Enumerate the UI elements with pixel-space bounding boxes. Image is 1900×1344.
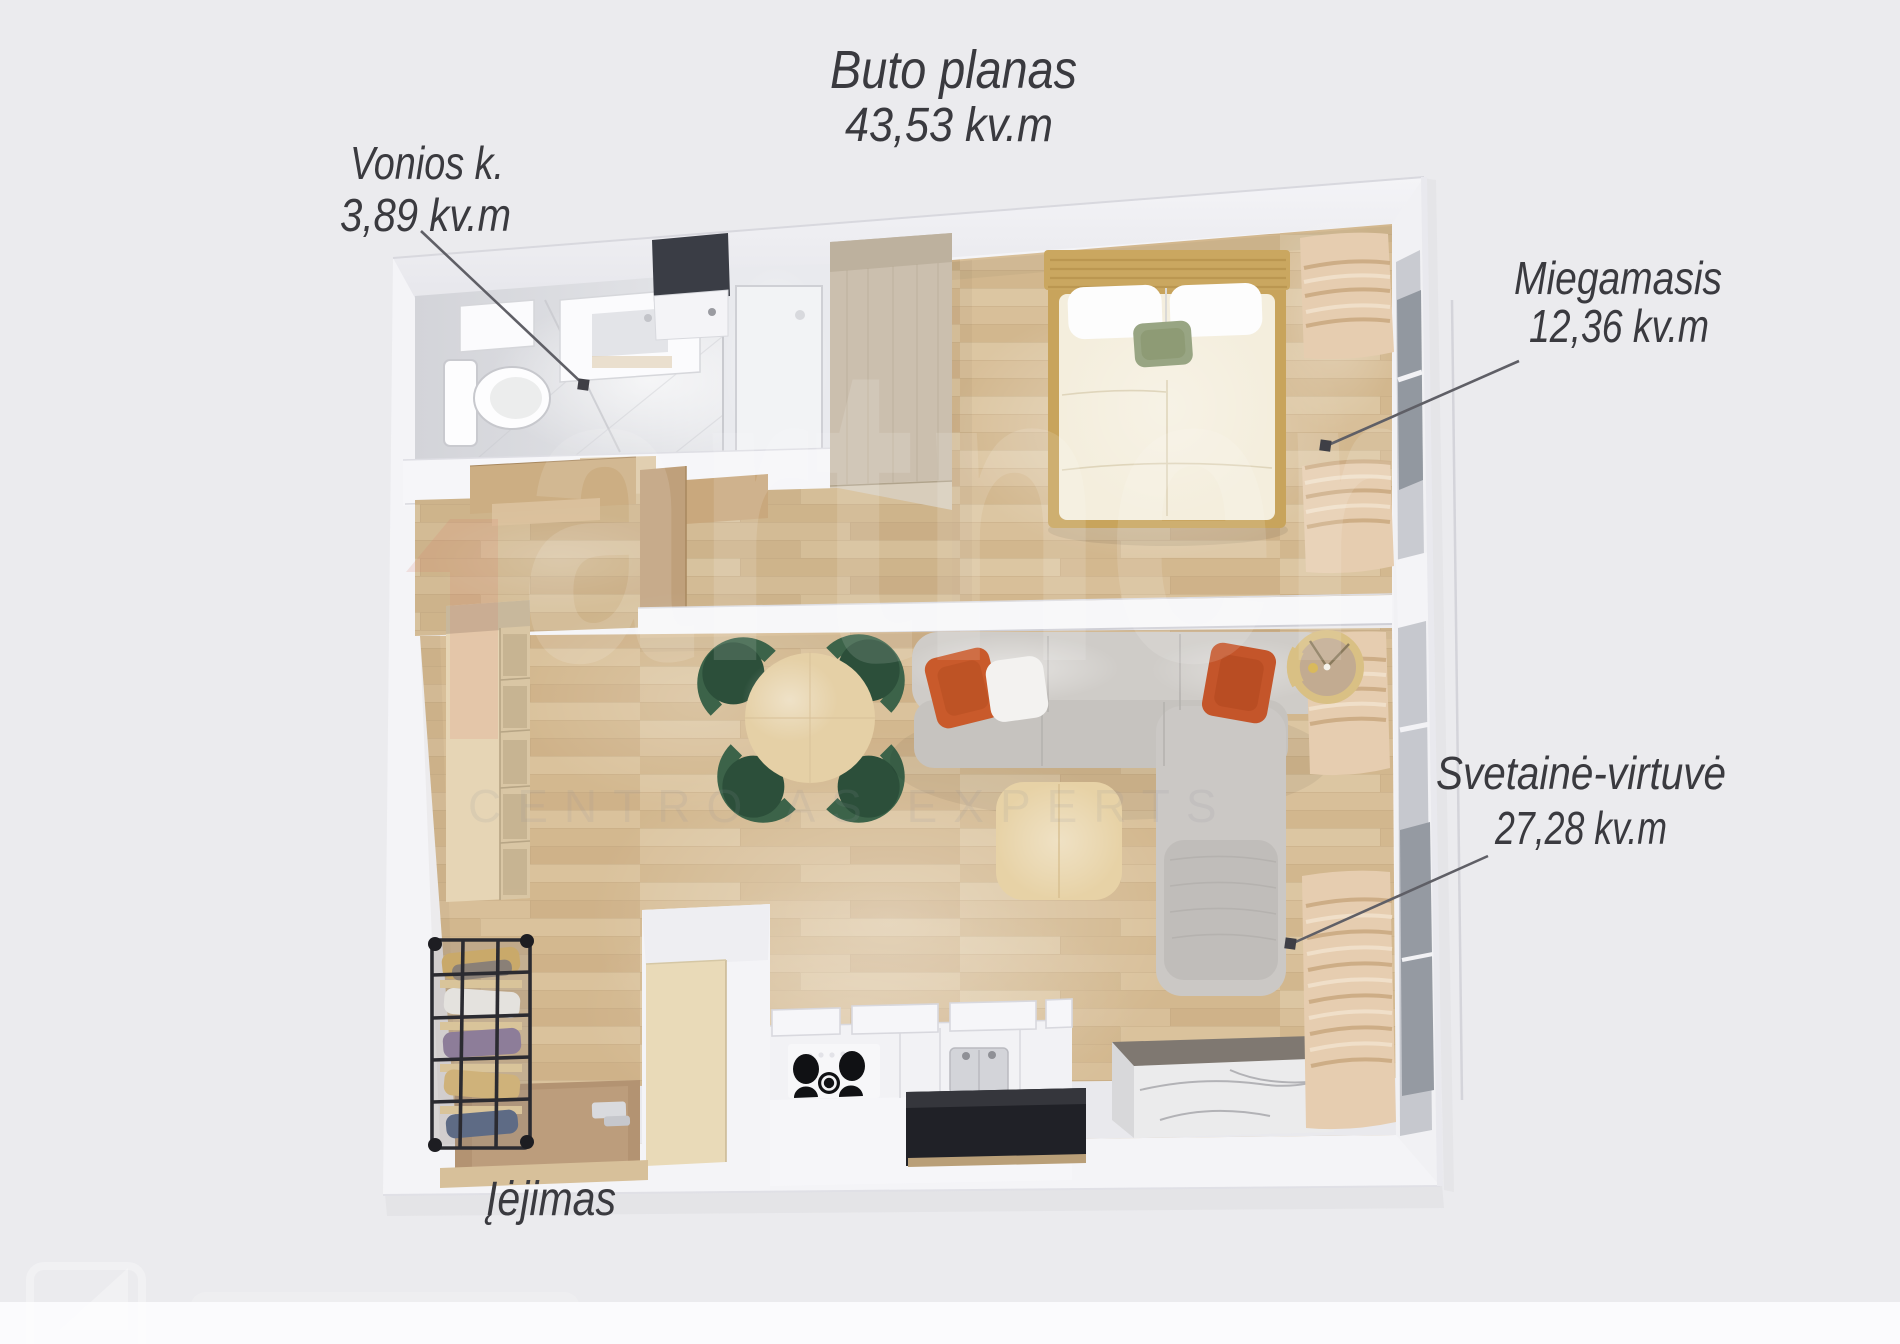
svg-text:27,28 kv.m: 27,28 kv.m [1494,802,1667,854]
svg-text:Vonios k.: Vonios k. [350,137,504,189]
svg-text:Svetainė-virtuvė: Svetainė-virtuvė [1436,747,1726,799]
svg-text:12,36 kv.m: 12,36 kv.m [1529,300,1709,352]
svg-text:3,89 kv.m: 3,89 kv.m [340,189,511,241]
svg-text:43,53 kv.m: 43,53 kv.m [845,99,1053,152]
svg-text:artner: artner [520,272,1398,752]
svg-text:Miegamasis: Miegamasis [1514,252,1722,304]
svg-text:Buto planas: Buto planas [830,40,1077,100]
svg-text:Įėjimas: Įėjimas [484,1173,616,1226]
svg-text:CENTRO AS EXPERTS: CENTRO AS EXPERTS [468,780,1233,832]
